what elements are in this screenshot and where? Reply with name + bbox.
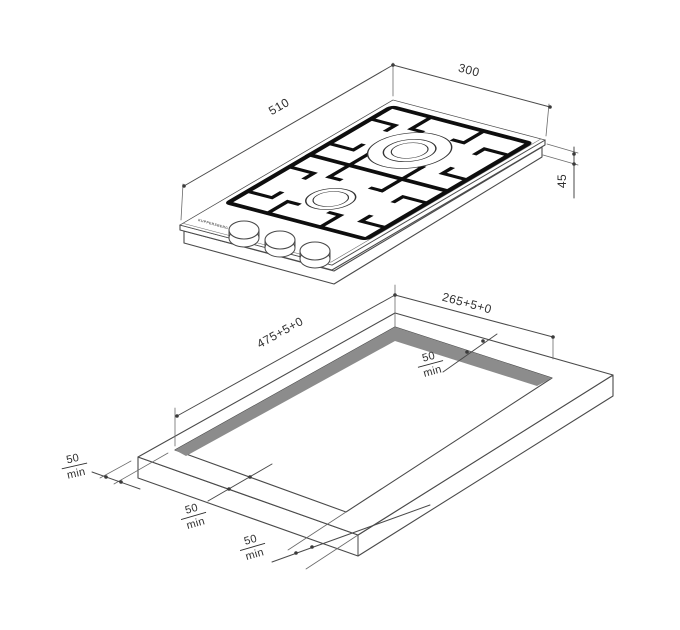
dim-45: 45	[543, 144, 578, 198]
knob-2	[265, 231, 295, 257]
knob-3	[300, 242, 330, 268]
clearance-value: 50	[65, 452, 80, 467]
dim-265-label: 265+5+0	[441, 290, 494, 317]
cutout-isometric-view: 475+5+0 265+5+0 50 min	[59, 285, 613, 569]
hob-isometric-view: KUPPERSBERG	[180, 61, 578, 284]
cutout-wall-left	[175, 327, 395, 456]
clearance-unit: min	[66, 466, 87, 482]
dim-45-label: 45	[555, 174, 569, 188]
dim-510-label: 510	[266, 95, 292, 118]
technical-drawing-page: KUPPERSBERG	[0, 0, 680, 630]
clearance-unit: min	[422, 363, 443, 379]
knob-1	[229, 221, 259, 247]
dim-475-label: 475+5+0	[254, 314, 305, 351]
hob-installation-diagram: KUPPERSBERG	[0, 0, 680, 630]
dim-300-label: 300	[457, 61, 481, 80]
